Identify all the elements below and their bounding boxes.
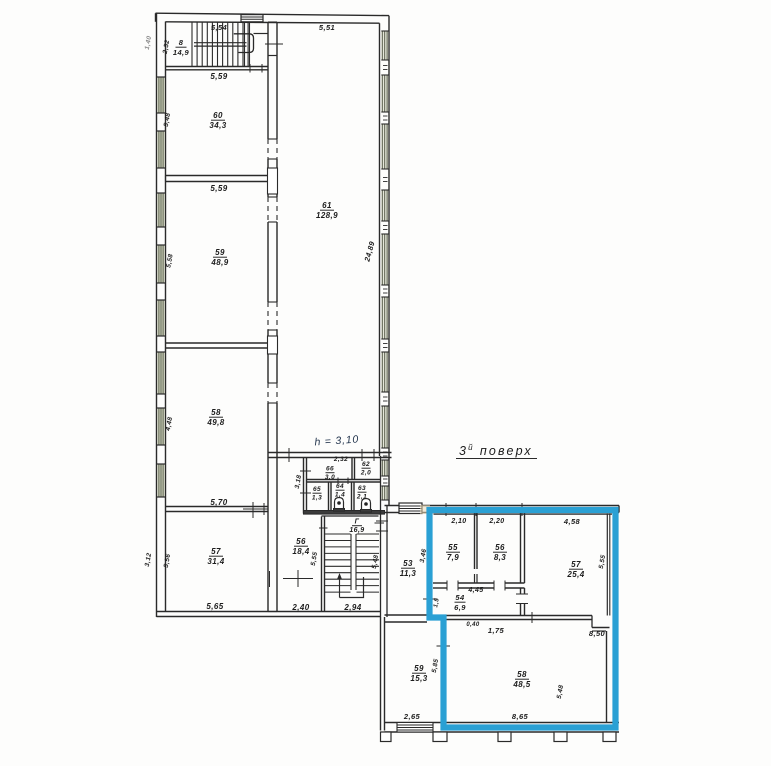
svg-text:8,65: 8,65 xyxy=(512,712,529,721)
svg-text:4,58: 4,58 xyxy=(563,517,581,526)
svg-text:4,45: 4,45 xyxy=(467,587,483,594)
svg-text:6,9: 6,9 xyxy=(454,603,466,612)
svg-text:8,50: 8,50 xyxy=(589,629,606,638)
svg-text:15,3: 15,3 xyxy=(410,674,427,683)
svg-text:1,3: 1,3 xyxy=(312,495,322,502)
svg-text:60: 60 xyxy=(213,111,223,120)
svg-text:56: 56 xyxy=(296,537,306,546)
svg-text:48,5: 48,5 xyxy=(512,680,530,689)
svg-text:65: 65 xyxy=(313,486,321,493)
svg-text:58: 58 xyxy=(211,408,221,417)
svg-text:8: 8 xyxy=(179,38,184,47)
svg-text:5,70: 5,70 xyxy=(210,498,227,507)
svg-text:57: 57 xyxy=(211,547,221,556)
svg-text:5,59: 5,59 xyxy=(210,72,227,81)
svg-text:1,4: 1,4 xyxy=(335,492,345,499)
svg-text:3,0: 3,0 xyxy=(325,474,335,481)
svg-text:66: 66 xyxy=(326,466,334,473)
svg-text:8,3: 8,3 xyxy=(494,553,506,562)
svg-text:56: 56 xyxy=(495,543,505,552)
svg-text:7,9: 7,9 xyxy=(447,553,459,562)
svg-text:11,3: 11,3 xyxy=(400,569,417,578)
svg-text:2,65: 2,65 xyxy=(403,712,421,721)
svg-text:2,20: 2,20 xyxy=(488,518,504,525)
svg-text:61: 61 xyxy=(322,201,332,210)
svg-text:1,75: 1,75 xyxy=(488,626,505,635)
svg-text:2,40: 2,40 xyxy=(291,603,309,612)
svg-text:31,4: 31,4 xyxy=(207,557,224,566)
svg-text:25,4: 25,4 xyxy=(566,570,584,579)
svg-text:59: 59 xyxy=(215,248,225,257)
svg-text:55: 55 xyxy=(448,543,458,552)
svg-text:5,59: 5,59 xyxy=(210,184,227,193)
svg-text:Г: Г xyxy=(355,519,360,526)
svg-text:53: 53 xyxy=(403,559,413,568)
svg-text:62: 62 xyxy=(362,461,370,468)
svg-text:57: 57 xyxy=(571,560,581,569)
svg-text:58: 58 xyxy=(517,670,527,679)
svg-text:63: 63 xyxy=(358,485,366,492)
svg-text:49,8: 49,8 xyxy=(206,418,224,427)
svg-text:128,9: 128,9 xyxy=(316,211,338,220)
svg-text:2,94: 2,94 xyxy=(343,603,361,612)
svg-text:16,9: 16,9 xyxy=(349,527,364,534)
svg-text:2,32: 2,32 xyxy=(333,456,348,463)
svg-text:2,0: 2,0 xyxy=(360,470,371,477)
svg-text:2,1: 2,1 xyxy=(356,494,367,501)
svg-text:0,40: 0,40 xyxy=(466,622,480,628)
svg-text:2,10: 2,10 xyxy=(450,518,466,525)
svg-text:14,9: 14,9 xyxy=(173,48,190,57)
svg-text:48,9: 48,9 xyxy=(210,258,228,267)
svg-text:5,51: 5,51 xyxy=(319,23,335,32)
svg-text:18,4: 18,4 xyxy=(292,547,309,556)
svg-text:34,3: 34,3 xyxy=(209,121,226,130)
svg-text:5,65: 5,65 xyxy=(206,602,223,611)
svg-text:5,54: 5,54 xyxy=(211,23,228,32)
svg-text:64: 64 xyxy=(336,483,344,490)
svg-text:59: 59 xyxy=(414,664,424,673)
svg-text:54: 54 xyxy=(455,593,465,602)
